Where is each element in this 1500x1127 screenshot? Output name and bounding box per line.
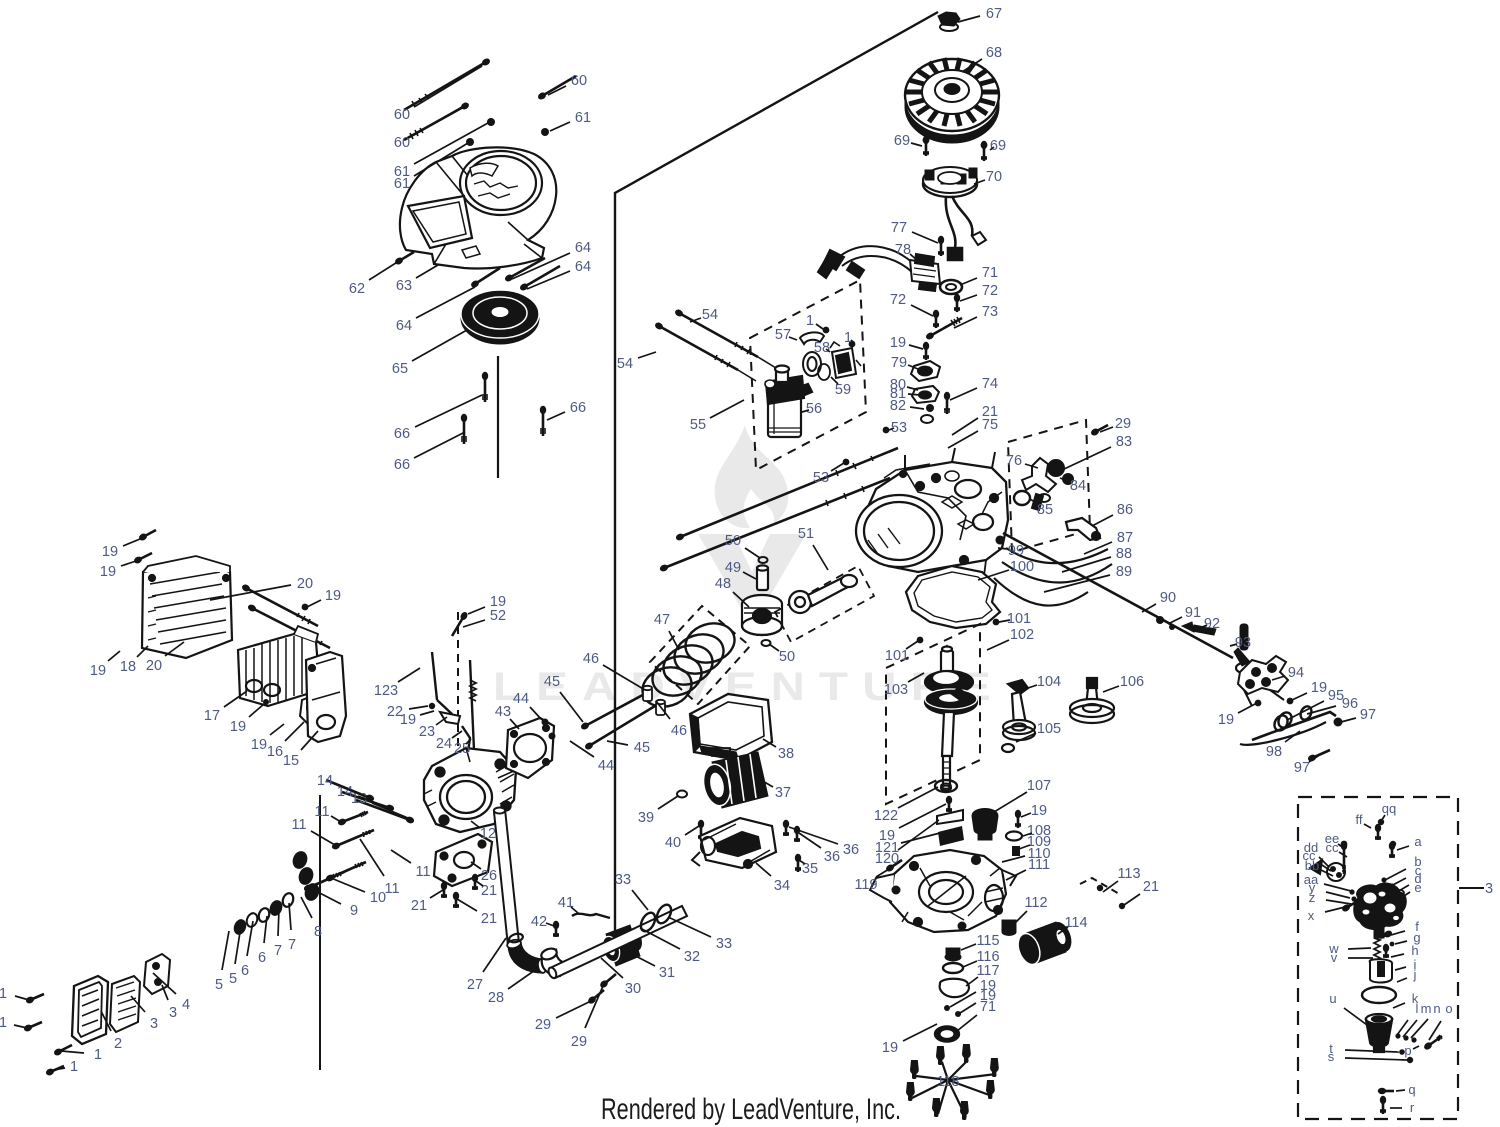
svg-text:19: 19 — [400, 712, 416, 728]
svg-text:1: 1 — [0, 1015, 7, 1031]
svg-text:55: 55 — [690, 417, 706, 433]
svg-text:18: 18 — [120, 659, 136, 675]
svg-text:49: 49 — [725, 560, 741, 576]
svg-text:115: 115 — [976, 933, 999, 949]
svg-text:u: u — [1329, 991, 1336, 1006]
svg-text:29: 29 — [535, 1017, 551, 1033]
svg-text:5: 5 — [215, 977, 223, 993]
svg-text:23: 23 — [419, 724, 435, 740]
svg-text:70: 70 — [986, 169, 1002, 185]
svg-text:76: 76 — [1006, 453, 1022, 469]
svg-text:19: 19 — [325, 588, 341, 604]
svg-text:106: 106 — [1120, 674, 1144, 690]
svg-text:99: 99 — [1008, 543, 1024, 559]
svg-text:39: 39 — [638, 810, 654, 826]
svg-text:47: 47 — [654, 612, 670, 628]
svg-text:27: 27 — [467, 977, 483, 993]
svg-text:9: 9 — [350, 903, 358, 919]
svg-text:103: 103 — [884, 682, 908, 698]
svg-text:83: 83 — [1116, 434, 1132, 450]
svg-text:12: 12 — [480, 826, 496, 842]
svg-text:66: 66 — [394, 426, 410, 442]
svg-text:36: 36 — [824, 849, 840, 865]
svg-text:84: 84 — [1070, 478, 1086, 494]
svg-text:46: 46 — [671, 723, 687, 739]
svg-text:11: 11 — [415, 864, 430, 880]
svg-text:32: 32 — [684, 949, 700, 965]
svg-text:44: 44 — [598, 758, 614, 774]
svg-text:s: s — [1328, 1049, 1335, 1064]
svg-text:107: 107 — [1027, 778, 1051, 794]
svg-text:11: 11 — [291, 817, 306, 833]
svg-text:30: 30 — [625, 981, 641, 997]
svg-text:cc: cc — [1326, 840, 1340, 855]
svg-text:21: 21 — [1143, 879, 1159, 895]
svg-text:79: 79 — [891, 355, 907, 371]
svg-text:34: 34 — [774, 878, 790, 894]
svg-text:61: 61 — [394, 176, 410, 192]
svg-text:h: h — [1411, 943, 1418, 958]
svg-text:p: p — [1404, 1043, 1411, 1058]
svg-text:78: 78 — [895, 242, 911, 258]
svg-text:19: 19 — [1218, 712, 1234, 728]
svg-text:97: 97 — [1294, 760, 1310, 776]
svg-text:4: 4 — [182, 997, 190, 1013]
svg-text:z: z — [1309, 890, 1316, 905]
svg-text:19: 19 — [90, 663, 106, 679]
svg-text:21: 21 — [411, 898, 427, 914]
svg-text:19: 19 — [1031, 803, 1047, 819]
svg-text:37: 37 — [775, 785, 791, 801]
svg-text:qq: qq — [1382, 801, 1396, 816]
svg-text:52: 52 — [490, 608, 506, 624]
svg-text:85: 85 — [1037, 502, 1053, 518]
svg-text:m: m — [1421, 1001, 1432, 1016]
svg-text:bb: bb — [1305, 858, 1319, 873]
svg-text:42: 42 — [531, 914, 547, 930]
svg-text:44: 44 — [513, 691, 529, 707]
svg-text:o: o — [1445, 1001, 1452, 1016]
svg-text:91: 91 — [1185, 605, 1201, 621]
svg-text:97: 97 — [1360, 707, 1376, 723]
svg-text:1: 1 — [70, 1059, 78, 1075]
svg-text:94: 94 — [1288, 665, 1304, 681]
svg-text:1: 1 — [806, 313, 814, 329]
svg-text:58: 58 — [814, 340, 830, 356]
svg-text:10: 10 — [370, 890, 386, 906]
svg-text:66: 66 — [570, 400, 586, 416]
svg-text:29: 29 — [571, 1034, 587, 1050]
svg-text:19: 19 — [251, 737, 267, 753]
svg-text:86: 86 — [1117, 502, 1133, 518]
svg-text:69: 69 — [894, 133, 910, 149]
svg-text:60: 60 — [394, 135, 410, 151]
svg-text:101: 101 — [885, 648, 909, 664]
svg-text:38: 38 — [778, 746, 794, 762]
svg-text:45: 45 — [544, 674, 560, 690]
svg-text:73: 73 — [982, 304, 998, 320]
svg-text:61: 61 — [575, 110, 591, 126]
svg-text:19: 19 — [1311, 680, 1327, 696]
svg-text:65: 65 — [392, 361, 408, 377]
svg-text:105: 105 — [1037, 721, 1061, 737]
svg-text:123: 123 — [374, 683, 398, 699]
svg-text:a: a — [1414, 834, 1422, 849]
svg-text:5: 5 — [229, 971, 237, 987]
svg-text:20: 20 — [297, 576, 313, 592]
svg-text:100: 100 — [1010, 559, 1034, 575]
svg-text:40: 40 — [665, 835, 681, 851]
svg-text:50: 50 — [779, 649, 795, 665]
svg-text:19: 19 — [102, 544, 118, 560]
svg-text:33: 33 — [716, 936, 732, 952]
svg-text:8: 8 — [314, 924, 322, 940]
svg-text:31: 31 — [659, 965, 675, 981]
svg-text:ff: ff — [1356, 812, 1363, 827]
svg-text:89: 89 — [1116, 564, 1132, 580]
svg-text:7: 7 — [288, 937, 296, 953]
svg-text:62: 62 — [349, 281, 365, 297]
svg-text:69: 69 — [990, 138, 1006, 154]
svg-text:60: 60 — [394, 107, 410, 123]
svg-text:93: 93 — [1235, 635, 1251, 651]
svg-text:56: 56 — [806, 401, 822, 417]
svg-text:117: 117 — [976, 963, 999, 979]
svg-text:7: 7 — [274, 943, 282, 959]
svg-text:26: 26 — [481, 868, 497, 884]
svg-text:74: 74 — [982, 376, 998, 392]
svg-text:82: 82 — [890, 398, 906, 414]
svg-text:72: 72 — [982, 283, 998, 299]
svg-text:3: 3 — [169, 1005, 177, 1021]
svg-text:71: 71 — [982, 265, 998, 281]
svg-text:28: 28 — [488, 990, 504, 1006]
svg-text:21: 21 — [481, 911, 497, 927]
svg-text:6: 6 — [241, 963, 249, 979]
svg-text:j: j — [1413, 967, 1417, 982]
svg-text:46: 46 — [583, 651, 599, 667]
svg-text:77: 77 — [891, 220, 907, 236]
svg-text:19: 19 — [890, 335, 906, 351]
svg-text:111: 111 — [1028, 857, 1050, 873]
svg-text:11: 11 — [314, 804, 329, 820]
svg-text:2: 2 — [114, 1036, 122, 1052]
svg-text:119: 119 — [854, 877, 877, 893]
svg-text:19: 19 — [230, 719, 246, 735]
svg-text:q: q — [1408, 1082, 1415, 1097]
svg-text:24: 24 — [436, 736, 452, 752]
svg-text:72: 72 — [890, 292, 906, 308]
svg-text:114: 114 — [1064, 915, 1087, 931]
svg-text:17: 17 — [204, 708, 220, 724]
svg-text:54: 54 — [617, 356, 633, 372]
svg-text:1: 1 — [844, 330, 852, 346]
svg-text:33: 33 — [615, 872, 631, 888]
svg-text:122: 122 — [874, 808, 898, 824]
svg-text:16: 16 — [267, 744, 283, 760]
svg-text:87: 87 — [1117, 530, 1133, 546]
svg-text:57: 57 — [775, 327, 791, 343]
svg-text:120: 120 — [875, 851, 899, 867]
svg-text:48: 48 — [715, 576, 731, 592]
svg-text:v: v — [1331, 950, 1338, 965]
svg-text:3: 3 — [1485, 881, 1493, 897]
svg-text:90: 90 — [1160, 590, 1176, 606]
svg-text:71: 71 — [980, 999, 996, 1015]
svg-text:29: 29 — [1115, 416, 1131, 432]
svg-text:r: r — [1410, 1100, 1415, 1115]
svg-text:63: 63 — [396, 278, 412, 294]
svg-text:3: 3 — [150, 1016, 158, 1032]
svg-text:15: 15 — [283, 753, 299, 769]
svg-text:6: 6 — [258, 950, 266, 966]
svg-text:96: 96 — [1342, 696, 1358, 712]
svg-text:51: 51 — [798, 526, 814, 542]
svg-text:45: 45 — [634, 740, 650, 756]
svg-text:1: 1 — [0, 986, 7, 1002]
svg-text:98: 98 — [1266, 744, 1282, 760]
svg-text:53: 53 — [813, 470, 829, 486]
svg-text:n: n — [1433, 1001, 1440, 1016]
svg-text:20: 20 — [146, 658, 162, 674]
svg-text:l: l — [1416, 1001, 1419, 1016]
svg-text:75: 75 — [982, 417, 998, 433]
svg-text:68: 68 — [986, 45, 1002, 61]
svg-text:67: 67 — [986, 6, 1002, 22]
svg-text:19: 19 — [100, 564, 116, 580]
svg-text:118: 118 — [936, 1074, 959, 1090]
svg-text:36: 36 — [843, 842, 859, 858]
svg-text:102: 102 — [1010, 627, 1034, 643]
svg-text:113: 113 — [1117, 866, 1140, 882]
svg-text:e: e — [1414, 880, 1421, 895]
svg-text:112: 112 — [1024, 895, 1047, 911]
svg-text:43: 43 — [495, 704, 511, 720]
svg-text:101: 101 — [1007, 611, 1031, 627]
svg-text:60: 60 — [571, 73, 587, 89]
svg-text:19: 19 — [882, 1040, 898, 1056]
svg-text:88: 88 — [1116, 546, 1132, 562]
svg-text:104: 104 — [1037, 674, 1061, 690]
svg-text:14: 14 — [317, 773, 333, 789]
svg-text:64: 64 — [575, 259, 591, 275]
svg-text:11: 11 — [384, 881, 399, 897]
svg-text:x: x — [1308, 908, 1315, 923]
svg-text:66: 66 — [394, 457, 410, 473]
svg-text:1: 1 — [94, 1047, 102, 1063]
svg-text:Rendered by LeadVenture, Inc.: Rendered by LeadVenture, Inc. — [601, 1093, 901, 1126]
svg-text:92: 92 — [1204, 616, 1220, 632]
svg-text:64: 64 — [396, 318, 412, 334]
svg-text:50: 50 — [725, 533, 741, 549]
svg-text:54: 54 — [702, 307, 718, 323]
svg-text:64: 64 — [575, 240, 591, 256]
